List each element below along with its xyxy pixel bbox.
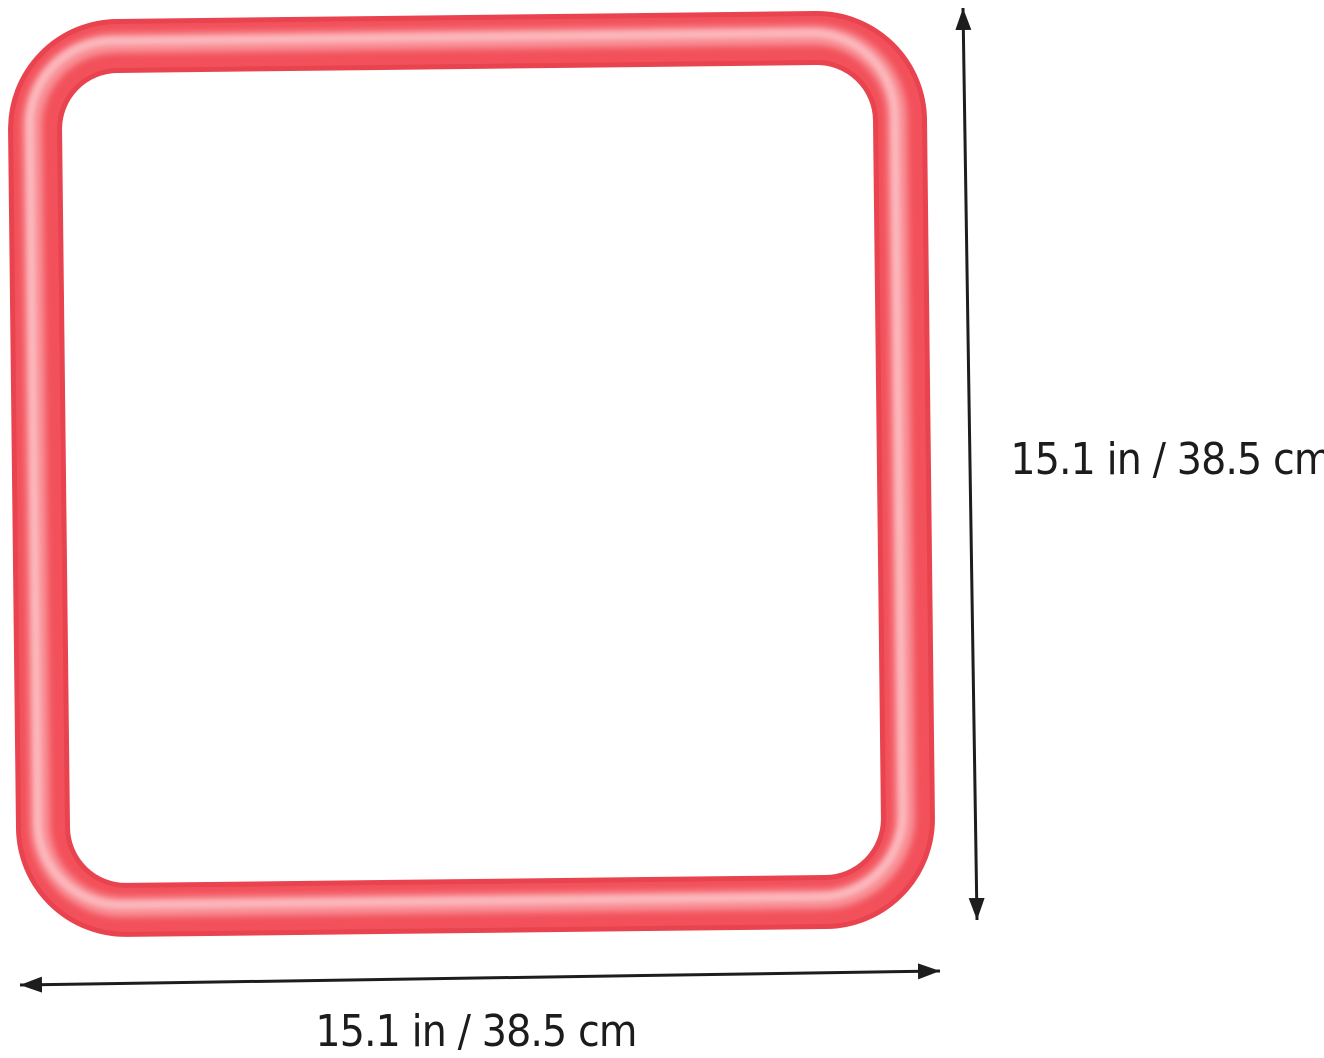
horizontal-dimension-arrow (20, 971, 940, 985)
frame-tube-gloss (29, 32, 904, 906)
product-dimension-diagram: 15.1 in / 38.5 cm 15.1 in / 38.5 cm (0, 0, 1324, 1058)
frame-tube-body (34, 37, 909, 911)
vertical-dimension-arrow (963, 8, 977, 920)
diagram-graphics (0, 0, 1324, 1058)
frame-tube-edge (34, 37, 909, 911)
horizontal-dimension-label: 15.1 in / 38.5 cm (315, 1006, 636, 1058)
frame-tube-highlight (31, 34, 906, 908)
red-square-frame (29, 32, 909, 911)
vertical-dimension-label: 15.1 in / 38.5 cm (1010, 434, 1324, 486)
